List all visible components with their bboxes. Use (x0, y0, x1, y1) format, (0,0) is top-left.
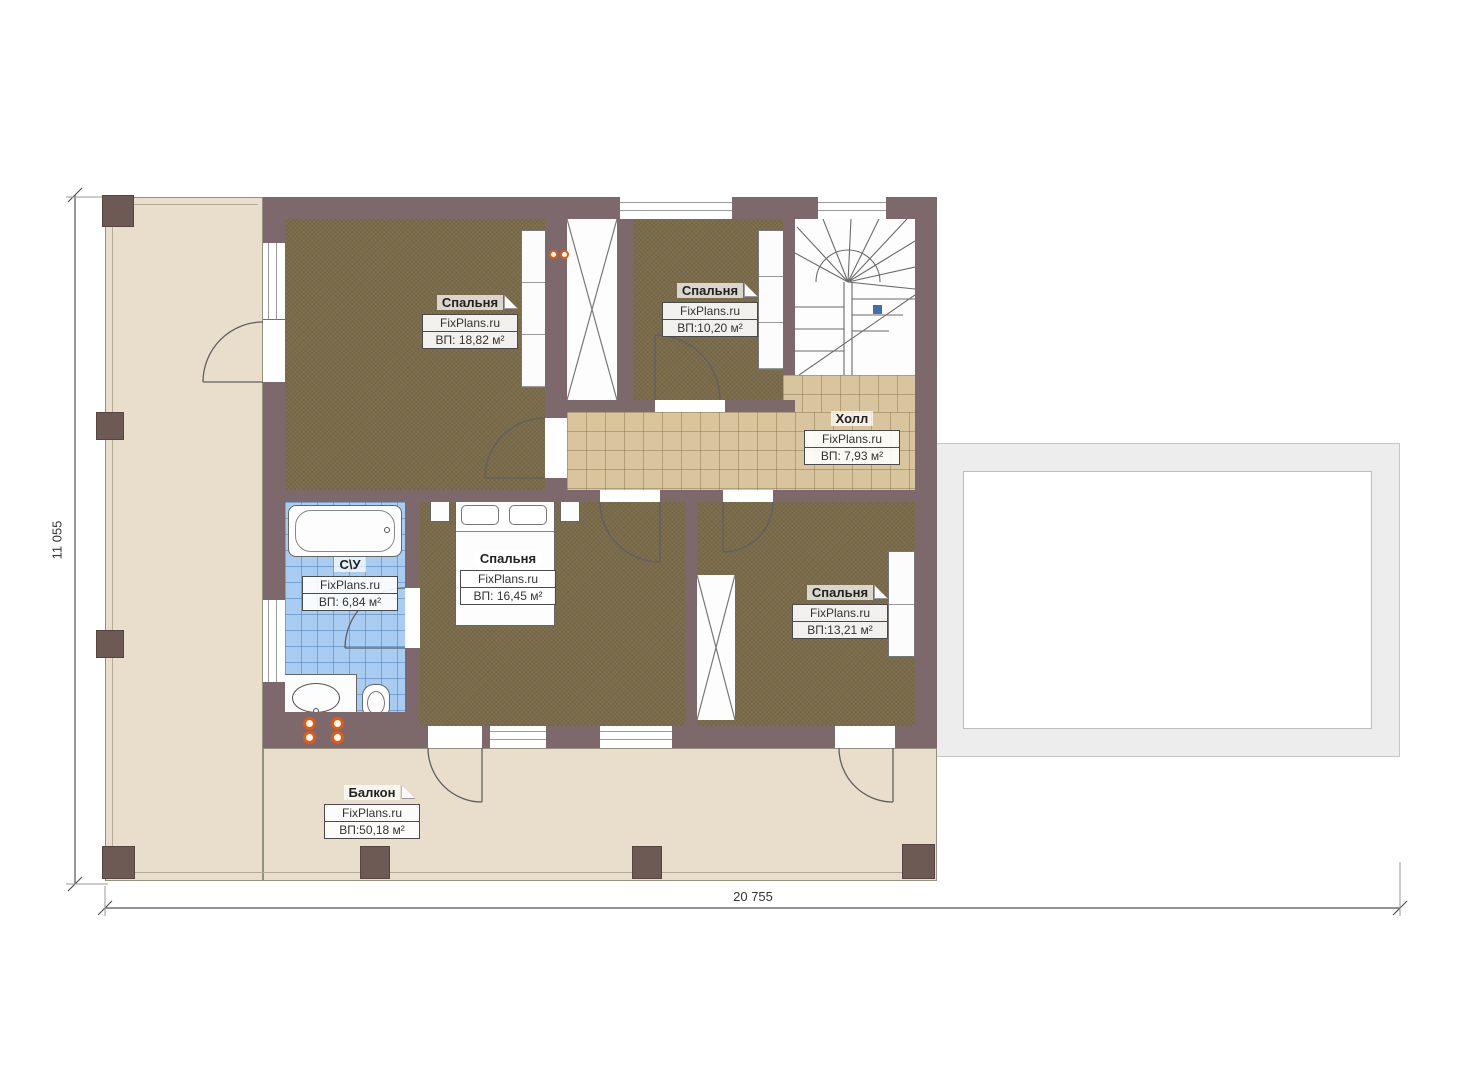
room-name: Спальня (807, 585, 873, 600)
label-fold-icon (504, 295, 518, 309)
radiator-icon (560, 250, 569, 259)
room-label-bedroom-1: Спальня FixPlans.ru ВП: 18,82 м² (422, 294, 518, 349)
room-name: Спальня (437, 295, 503, 310)
door-arc-bedroom4-hall (723, 502, 773, 552)
label-fold-icon (874, 585, 888, 599)
radiator-icon (303, 717, 316, 730)
watermark: FixPlans.ru (461, 571, 555, 588)
pillar (360, 846, 390, 879)
room-label-box: FixPlans.ru ВП: 16,45 м² (460, 570, 556, 605)
room-area: ВП: 7,93 м² (805, 448, 899, 464)
room-label-box: FixPlans.ru ВП: 7,93 м² (804, 430, 900, 465)
pillar (96, 412, 124, 440)
watermark: FixPlans.ru (663, 303, 757, 320)
door-swings (0, 0, 1474, 1080)
pillar (96, 630, 124, 658)
room-label-bathroom: С\У FixPlans.ru ВП: 6,84 м² (302, 556, 398, 611)
room-label-box: FixPlans.ru ВП: 18,82 м² (422, 314, 518, 349)
door-arc-bedroom1-hall (485, 418, 545, 478)
room-name: Балкон (344, 785, 401, 800)
room-label-box: FixPlans.ru ВП:13,21 м² (792, 604, 888, 639)
radiator-icon (303, 731, 316, 744)
door-arc-bedroom4-balcony (839, 748, 893, 802)
door-arc-bedroom1-terrace (203, 322, 263, 382)
radiator-icon (331, 717, 344, 730)
room-label-balcony: Балкон FixPlans.ru ВП:50,18 м² (324, 784, 420, 839)
room-label-bedroom-3: Спальня FixPlans.ru ВП: 16,45 м² (460, 550, 556, 605)
door-arc-bedroom3-hall (600, 502, 660, 562)
room-label-hall: Холл FixPlans.ru ВП: 7,93 м² (804, 410, 900, 465)
room-area: ВП: 6,84 м² (303, 594, 397, 610)
watermark: FixPlans.ru (423, 315, 517, 332)
room-area: ВП:50,18 м² (325, 822, 419, 838)
pillar (102, 195, 134, 227)
radiator-icon (331, 731, 344, 744)
room-label-box: FixPlans.ru ВП:50,18 м² (324, 804, 420, 839)
radiator-icon (549, 250, 558, 259)
pillar (902, 844, 935, 879)
room-label-bedroom-4: Спальня FixPlans.ru ВП:13,21 м² (792, 584, 888, 639)
pillar (632, 846, 662, 879)
room-label-bedroom-2: Спальня FixPlans.ru ВП:10,20 м² (662, 282, 758, 337)
floor-plan-canvas: 11 055 20 755 Спальня FixPlans.ru ВП: 18… (0, 0, 1474, 1080)
room-area: ВП: 18,82 м² (423, 332, 517, 348)
label-fold-icon (744, 283, 758, 297)
room-name: С\У (334, 557, 365, 572)
pillar (102, 846, 135, 879)
watermark: FixPlans.ru (793, 605, 887, 622)
label-fold-icon (401, 785, 415, 799)
watermark: FixPlans.ru (325, 805, 419, 822)
room-area: ВП:13,21 м² (793, 622, 887, 638)
door-arc-bedroom2-hall (655, 335, 720, 400)
room-name: Холл (831, 411, 874, 426)
room-name: Спальня (475, 551, 541, 566)
room-area: ВП:10,20 м² (663, 320, 757, 336)
watermark: FixPlans.ru (303, 577, 397, 594)
door-arc-bedroom3-balcony (428, 748, 482, 802)
room-label-box: FixPlans.ru ВП: 6,84 м² (302, 576, 398, 611)
room-label-box: FixPlans.ru ВП:10,20 м² (662, 302, 758, 337)
room-name: Спальня (677, 283, 743, 298)
watermark: FixPlans.ru (805, 431, 899, 448)
room-area: ВП: 16,45 м² (461, 588, 555, 604)
